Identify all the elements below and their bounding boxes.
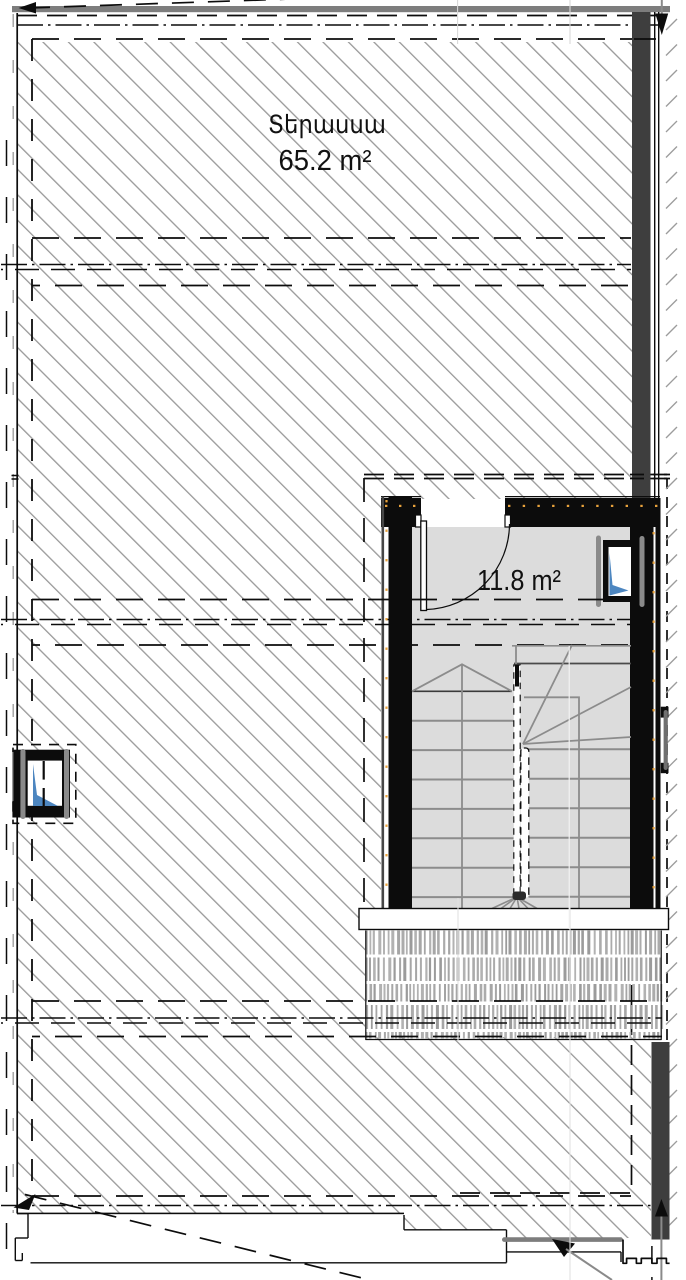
svg-text:11.8 m²: 11.8 m² [477, 565, 561, 597]
svg-text:65.2 m²: 65.2 m² [279, 145, 372, 177]
